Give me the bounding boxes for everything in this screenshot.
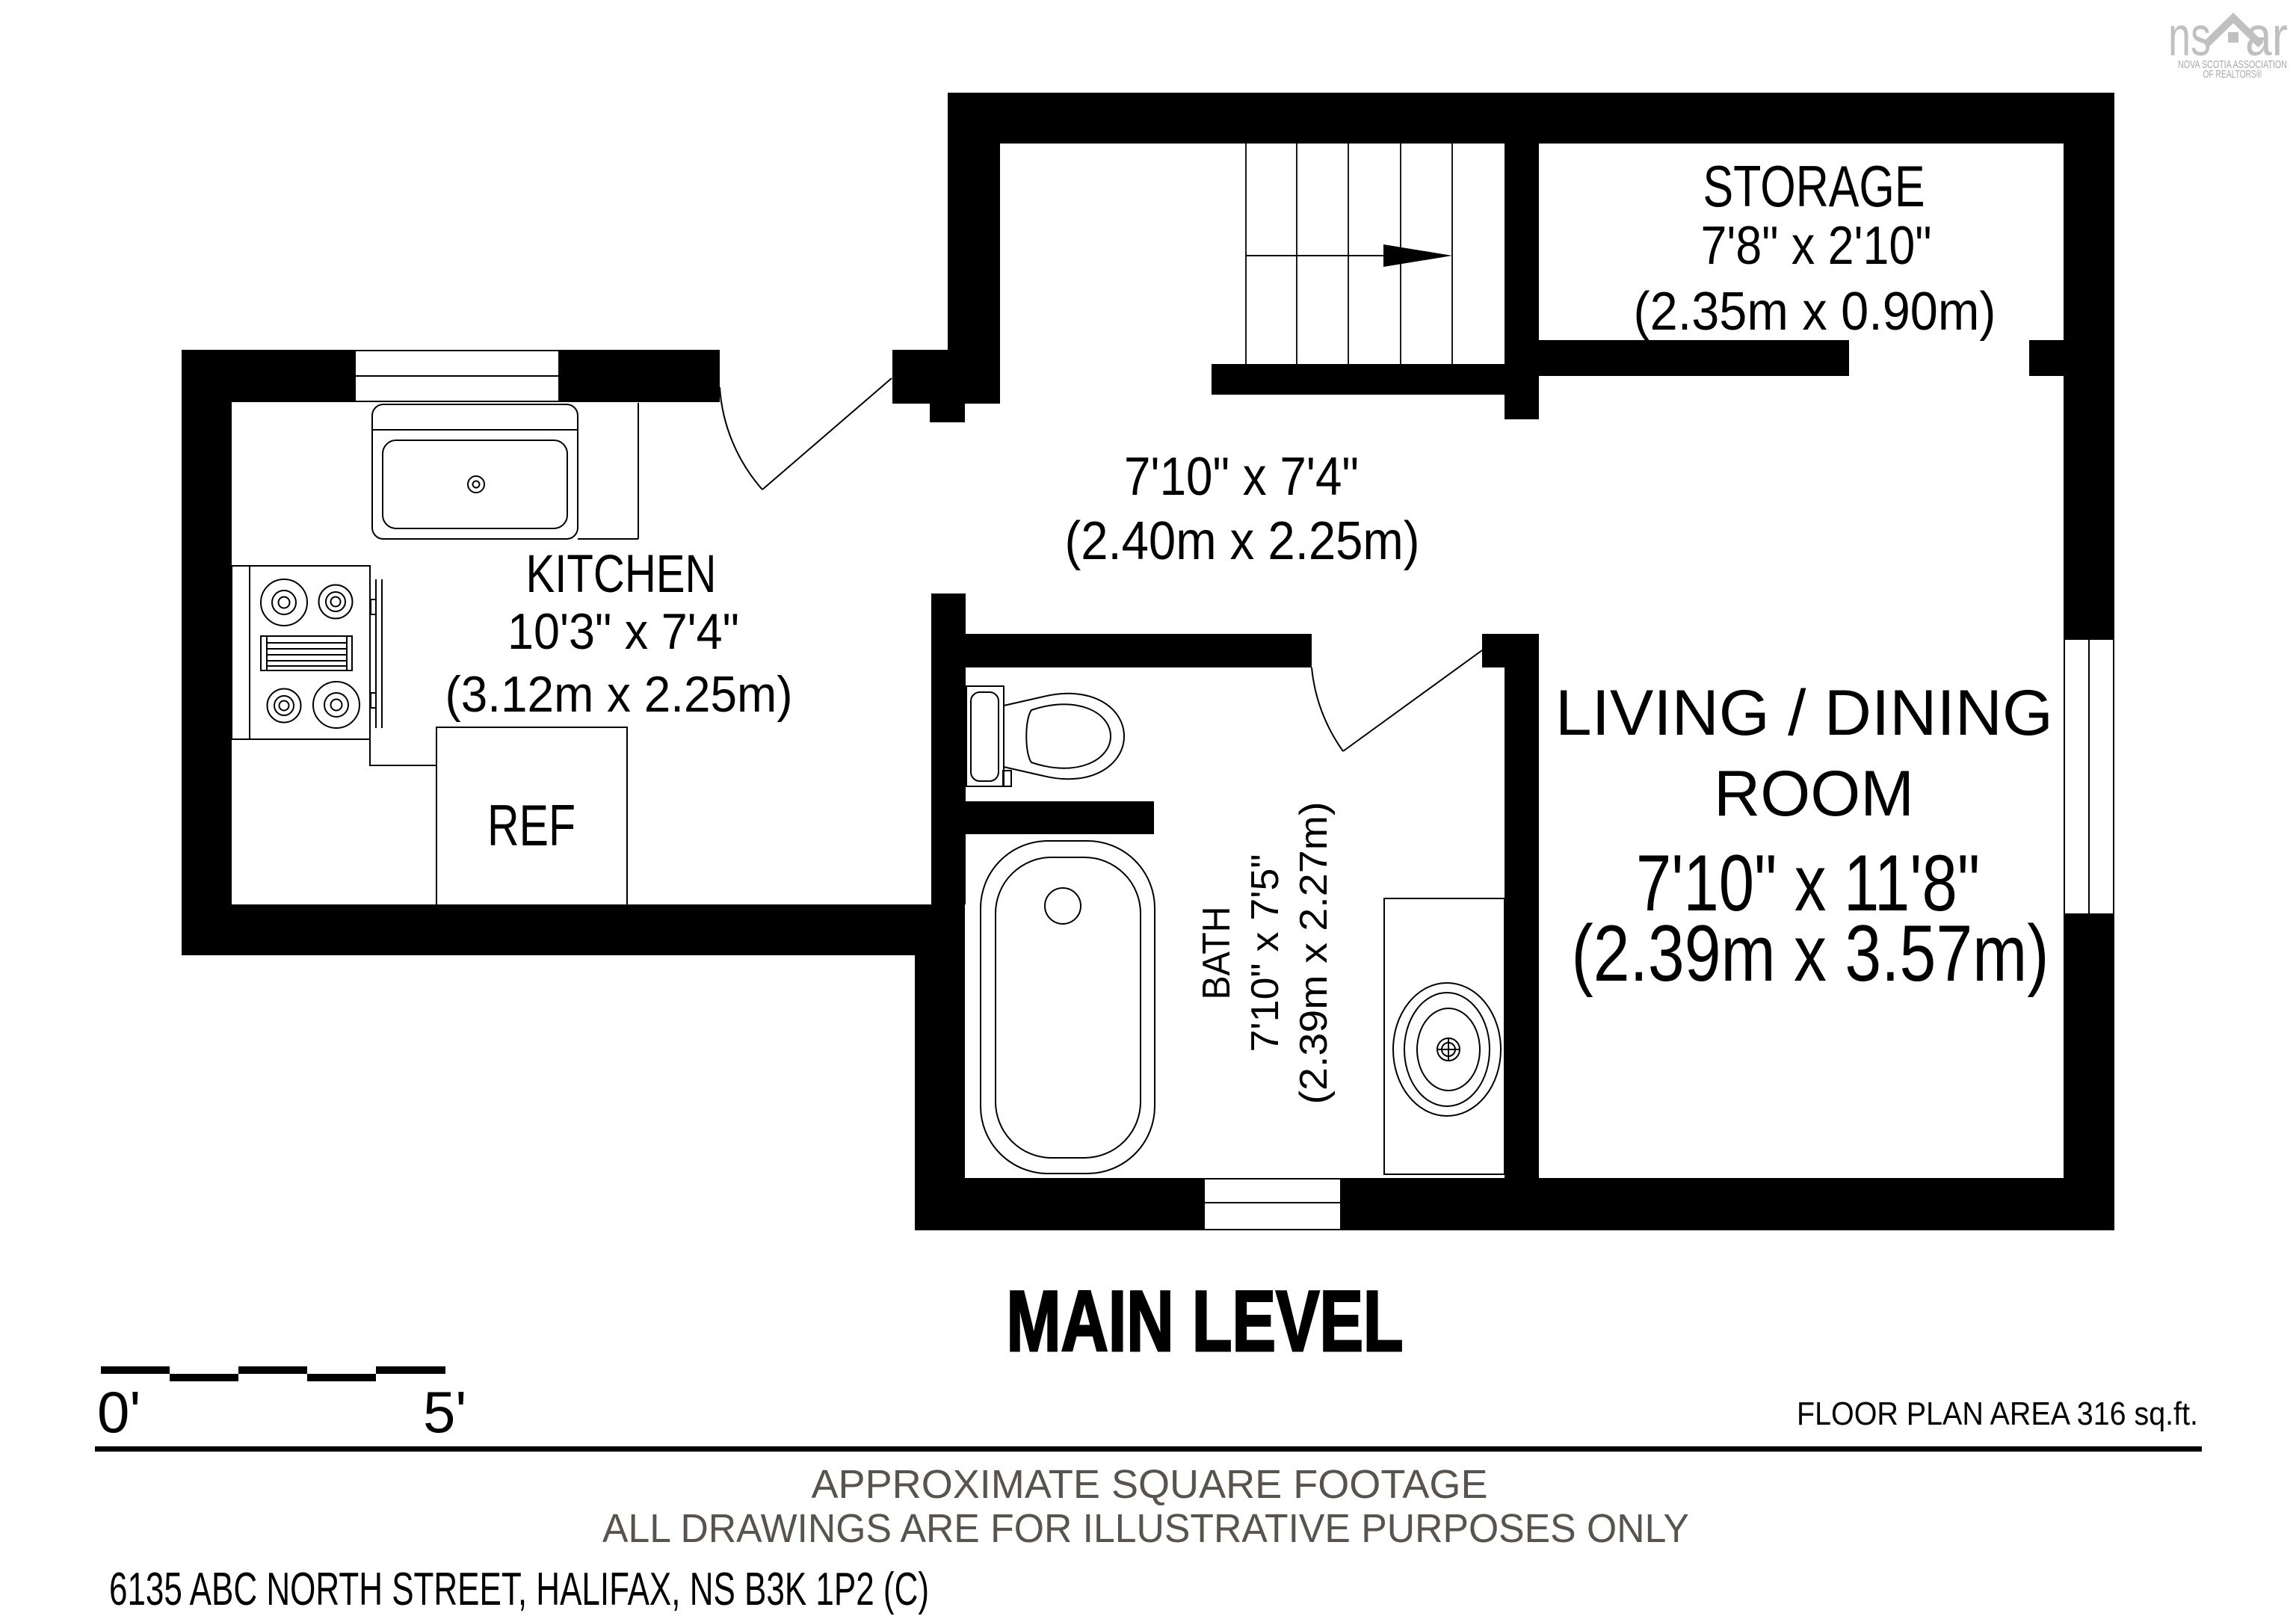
svg-text:MAIN LEVEL: MAIN LEVEL — [1007, 1274, 1404, 1369]
svg-text:(2.39m x 2.27m): (2.39m x 2.27m) — [1292, 802, 1336, 1105]
svg-text:ALL DRAWINGS ARE FOR ILLUSTRAT: ALL DRAWINGS ARE FOR ILLUSTRATIVE PURPOS… — [602, 1506, 1689, 1551]
svg-text:(2.35m x 0.90m): (2.35m x 0.90m) — [1634, 282, 1996, 342]
svg-text:BATH: BATH — [1195, 907, 1238, 1000]
svg-text:6135 ABC NORTH STREET, HALIFAX: 6135 ABC NORTH STREET, HALIFAX, NS B3K 1… — [109, 1564, 929, 1615]
svg-text:(2.39m x 3.57m): (2.39m x 3.57m) — [1572, 908, 2049, 998]
svg-text:OF REALTORS®: OF REALTORS® — [2203, 68, 2262, 81]
svg-text:(3.12m x 2.25m): (3.12m x 2.25m) — [445, 666, 793, 723]
svg-text:FLOOR PLAN AREA 316 sq.ft.: FLOOR PLAN AREA 316 sq.ft. — [1797, 1396, 2198, 1432]
svg-text:KITCHEN: KITCHEN — [526, 545, 717, 604]
svg-text:7'8" x 2'10": 7'8" x 2'10" — [1701, 216, 1932, 276]
svg-text:LIVING / DINING: LIVING / DINING — [1555, 677, 2053, 749]
svg-text:5': 5' — [423, 1379, 466, 1445]
svg-text:ROOM: ROOM — [1714, 758, 1914, 830]
svg-text:STORAGE: STORAGE — [1703, 153, 1925, 219]
svg-text:0': 0' — [97, 1379, 141, 1445]
svg-text:(2.40m x 2.25m): (2.40m x 2.25m) — [1065, 511, 1420, 571]
svg-text:REF: REF — [487, 792, 575, 858]
svg-text:7'10" x 7'5": 7'10" x 7'5" — [1244, 854, 1287, 1052]
svg-text:10'3" x 7'4": 10'3" x 7'4" — [507, 603, 739, 660]
svg-text:7'10" x 7'4": 7'10" x 7'4" — [1124, 447, 1359, 507]
svg-text:APPROXIMATE SQUARE FOOTAGE: APPROXIMATE SQUARE FOOTAGE — [812, 1462, 1488, 1507]
